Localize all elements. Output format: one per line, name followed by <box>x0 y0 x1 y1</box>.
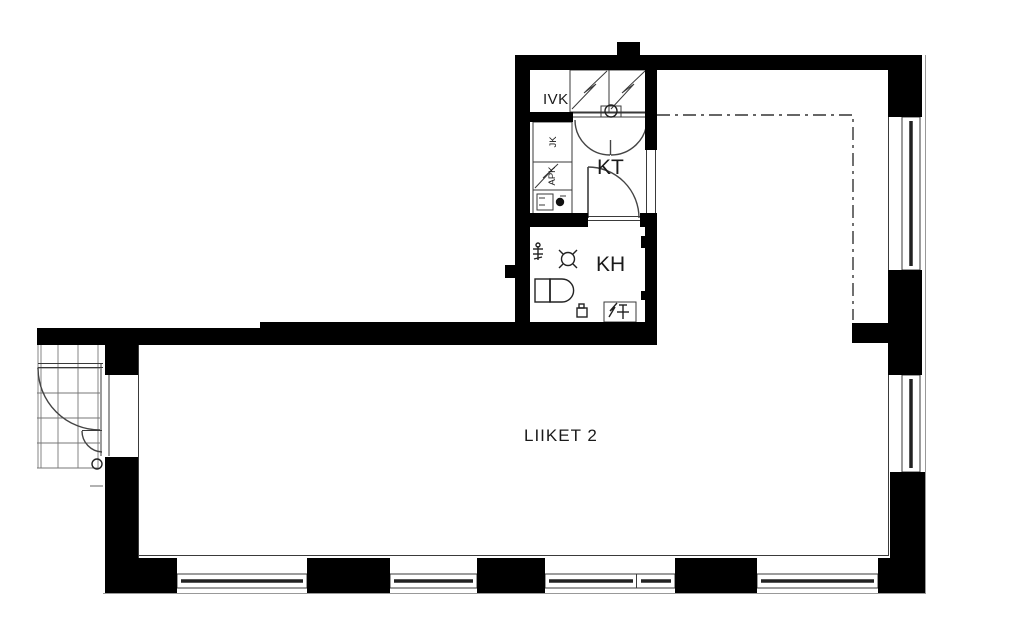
window <box>902 117 920 270</box>
wall-face-lines <box>90 70 889 558</box>
wall-segment <box>260 322 657 328</box>
wall-segment <box>105 457 138 593</box>
door-swing-small <box>82 431 102 452</box>
appliance-label-apk: APK <box>547 166 558 186</box>
windows <box>177 117 920 588</box>
pipe-tick <box>641 291 645 300</box>
toilet <box>535 279 574 302</box>
washing-machine-reservation <box>604 302 636 322</box>
shower-symbol <box>533 243 543 260</box>
wall-stub <box>852 323 890 343</box>
walls <box>37 42 925 593</box>
open-ceiling-boundary <box>657 115 853 320</box>
wall-segment <box>645 70 657 150</box>
wall-stub <box>617 42 640 55</box>
floor-drain <box>559 250 577 268</box>
wall-segment <box>37 328 657 345</box>
wall-pier <box>105 345 138 375</box>
appliance-label-jk: JK <box>548 136 559 148</box>
pipe-tick <box>641 236 645 248</box>
wall-pier <box>137 558 177 593</box>
floor-plan: IVK KT KH LIIKET 2 JK APK <box>0 0 1024 635</box>
room-label-kt: KT <box>597 156 624 179</box>
duct-circle <box>605 105 617 117</box>
door-post <box>92 459 102 469</box>
sink-drain <box>556 198 564 206</box>
window <box>757 574 878 588</box>
wall-pier <box>307 558 390 593</box>
wall-segment <box>517 213 588 227</box>
sink <box>533 190 572 214</box>
door-swing <box>38 368 100 430</box>
wall-segment <box>515 55 922 70</box>
cabinet-double-door <box>575 120 647 155</box>
wall-stub <box>517 112 573 122</box>
wall-segment <box>645 213 657 343</box>
floor-plan-page: IVK KT KH LIIKET 2 JK APK <box>0 0 1024 635</box>
wall-pier <box>477 558 545 593</box>
small-floor-drain <box>577 304 587 317</box>
wall-stub <box>505 265 517 278</box>
room-label-ivk: IVK <box>543 91 569 108</box>
window <box>545 574 675 588</box>
wall-pier <box>675 558 757 593</box>
room-label-kh: KH <box>596 253 625 276</box>
wall-segment <box>515 55 530 345</box>
room-label-liiket2: LIIKET 2 <box>524 426 598 445</box>
window <box>902 375 920 472</box>
wall-segment <box>878 558 925 593</box>
window <box>390 574 477 588</box>
wall-segment <box>888 55 922 117</box>
wall-segment <box>888 270 922 375</box>
window <box>177 574 307 588</box>
